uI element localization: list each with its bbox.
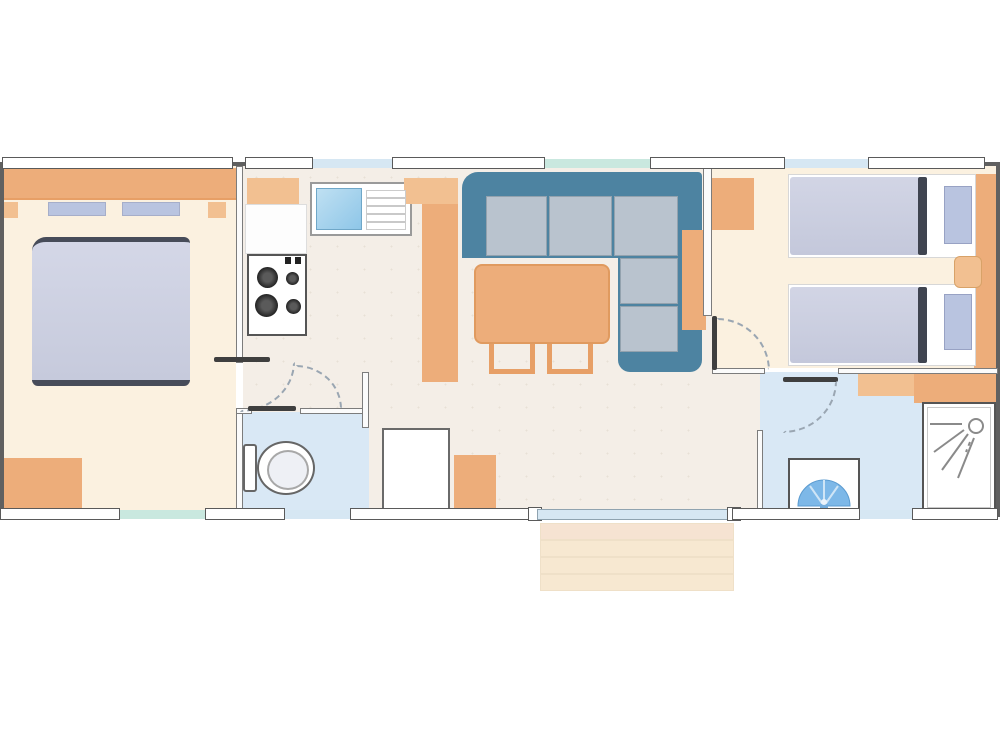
toilet-icon (257, 441, 315, 495)
wall-living-bedroom (703, 166, 712, 316)
sofa-cushion (614, 196, 678, 256)
window (2, 157, 233, 169)
pillow (122, 202, 180, 216)
washbasin-icon (790, 460, 858, 511)
window (245, 157, 313, 169)
window (205, 508, 285, 520)
twin-bed-mattress (790, 287, 920, 363)
toilet-cistern (243, 444, 257, 492)
hall-cabinet (454, 455, 496, 513)
blanket-fold (918, 177, 927, 255)
window (912, 508, 998, 520)
sliding-patio-door (537, 509, 732, 520)
blanket-fold (918, 287, 927, 363)
pillow (944, 294, 972, 350)
hob-burner-icon (286, 272, 299, 285)
twin-bed-mattress (790, 177, 920, 255)
pillow (48, 202, 106, 216)
hob (247, 254, 307, 336)
window-glazing (785, 159, 868, 168)
outer-wall-right (996, 162, 1000, 517)
window-glazing (313, 159, 392, 168)
washbasin-unit (788, 458, 860, 513)
nightstand (954, 256, 982, 288)
window (0, 508, 120, 520)
bedside-shelf (208, 202, 226, 218)
sofa-cushion (620, 306, 678, 352)
hob-burner-icon (255, 294, 278, 317)
hall-cupboard (382, 428, 450, 513)
sofa-cushion (486, 196, 547, 256)
window (392, 157, 545, 169)
sofa-cushion (549, 196, 612, 256)
hob-burner-icon (257, 267, 278, 288)
vanity-counter (858, 372, 914, 396)
pillow (944, 186, 972, 244)
window (650, 157, 785, 169)
window (868, 157, 985, 169)
window-glazing (860, 510, 912, 519)
entrance-steps (540, 523, 732, 591)
wall-wc-right (362, 372, 369, 428)
wall-twin-bedroom-bottom (838, 368, 998, 374)
kitchen-cabinet (247, 178, 299, 204)
shower-cubicle (922, 402, 996, 513)
step (540, 523, 734, 540)
wall-wc-left (236, 408, 243, 513)
dresser (4, 458, 82, 513)
kitchen-cabinet (404, 178, 458, 204)
floor-plan (0, 0, 1000, 750)
bedside-shelf (4, 202, 18, 218)
window (732, 508, 860, 520)
double-bed (32, 237, 190, 386)
window-glazing (285, 510, 350, 519)
headboard-shelf (4, 168, 236, 200)
window-glazing (545, 159, 650, 168)
toilet-bowl (267, 450, 309, 490)
hob-knob (285, 257, 291, 264)
window (350, 508, 537, 520)
wardrobe (712, 178, 754, 230)
sofa-cushion (620, 258, 678, 304)
step (540, 540, 734, 557)
hob-knob (295, 257, 301, 264)
sink-drainer (366, 190, 406, 230)
step (540, 574, 734, 591)
wall-bedroom-kitchen (236, 166, 243, 363)
step (540, 557, 734, 574)
vanity-counter (914, 370, 996, 403)
fridge-cabinet (422, 204, 458, 382)
shower-head-icon (924, 408, 994, 513)
kitchen-worktop (245, 204, 307, 254)
hob-burner-icon (286, 299, 301, 314)
kitchen-sink (316, 188, 362, 230)
wall-shower-room-left (757, 430, 763, 513)
wc-door (248, 406, 296, 411)
dining-table (474, 264, 610, 344)
window-glazing (120, 510, 205, 519)
